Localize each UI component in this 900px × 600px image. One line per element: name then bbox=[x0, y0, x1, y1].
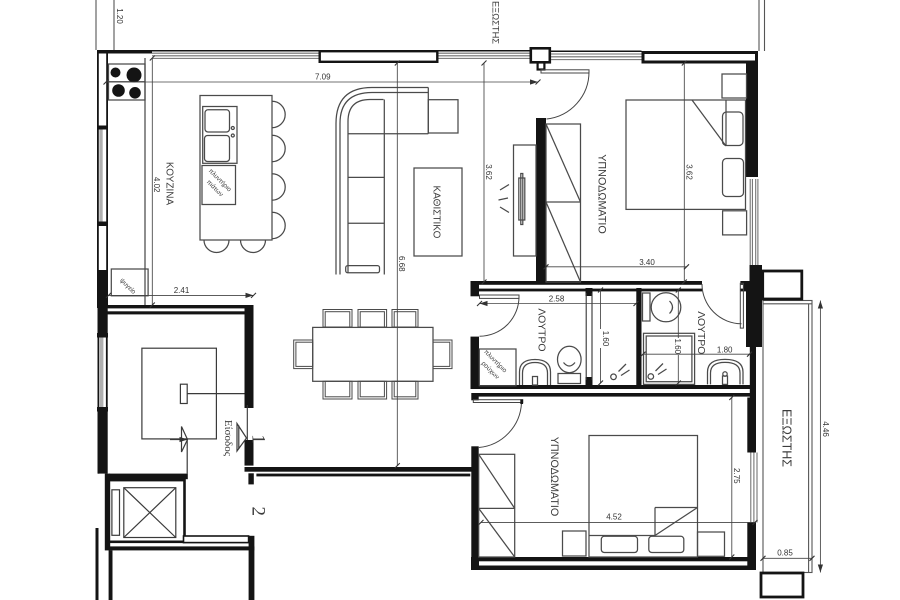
svg-text:3.40: 3.40 bbox=[639, 258, 655, 267]
svg-text:2.75: 2.75 bbox=[732, 468, 741, 484]
svg-text:7.09: 7.09 bbox=[315, 73, 331, 82]
svg-text:3.62: 3.62 bbox=[484, 164, 493, 180]
svg-text:2: 2 bbox=[248, 507, 269, 517]
svg-text:4.02: 4.02 bbox=[152, 177, 161, 193]
svg-text:0.85: 0.85 bbox=[777, 549, 793, 558]
svg-text:ΛΟΥΤΡΟ: ΛΟΥΤΡΟ bbox=[695, 311, 707, 354]
svg-text:ΚΟΥΖΙΝΑ: ΚΟΥΖΙΝΑ bbox=[164, 162, 175, 206]
svg-text:6.68: 6.68 bbox=[397, 256, 406, 272]
svg-text:1.80: 1.80 bbox=[717, 345, 733, 354]
svg-text:2.41: 2.41 bbox=[174, 286, 190, 295]
svg-text:4.46: 4.46 bbox=[821, 421, 830, 437]
svg-text:ΚΑΘΙΣΤΙΚΟ: ΚΑΘΙΣΤΙΚΟ bbox=[431, 186, 442, 239]
svg-text:1.60: 1.60 bbox=[601, 331, 610, 347]
svg-text:1.20: 1.20 bbox=[115, 8, 124, 24]
svg-text:ΕΞΩΣΤΗΣ: ΕΞΩΣΤΗΣ bbox=[780, 409, 794, 467]
svg-text:ΥΠΝΟΔΩΜΑΤΙΟ: ΥΠΝΟΔΩΜΑΤΙΟ bbox=[596, 154, 608, 234]
svg-text:ΛΟΥΤΡΟ: ΛΟΥΤΡΟ bbox=[536, 308, 548, 351]
svg-text:1: 1 bbox=[247, 434, 268, 444]
svg-text:4.52: 4.52 bbox=[606, 513, 622, 522]
svg-text:1.60: 1.60 bbox=[673, 339, 682, 355]
svg-text:ΕΞΩΣΤΗΣ: ΕΞΩΣΤΗΣ bbox=[491, 1, 501, 44]
svg-text:ΥΠΝΟΔΩΜΑΤΙΟ: ΥΠΝΟΔΩΜΑΤΙΟ bbox=[548, 437, 560, 517]
svg-text:Είσοδος: Είσοδος bbox=[222, 420, 234, 457]
svg-text:2.58: 2.58 bbox=[549, 294, 565, 303]
svg-text:3.62: 3.62 bbox=[685, 164, 694, 180]
